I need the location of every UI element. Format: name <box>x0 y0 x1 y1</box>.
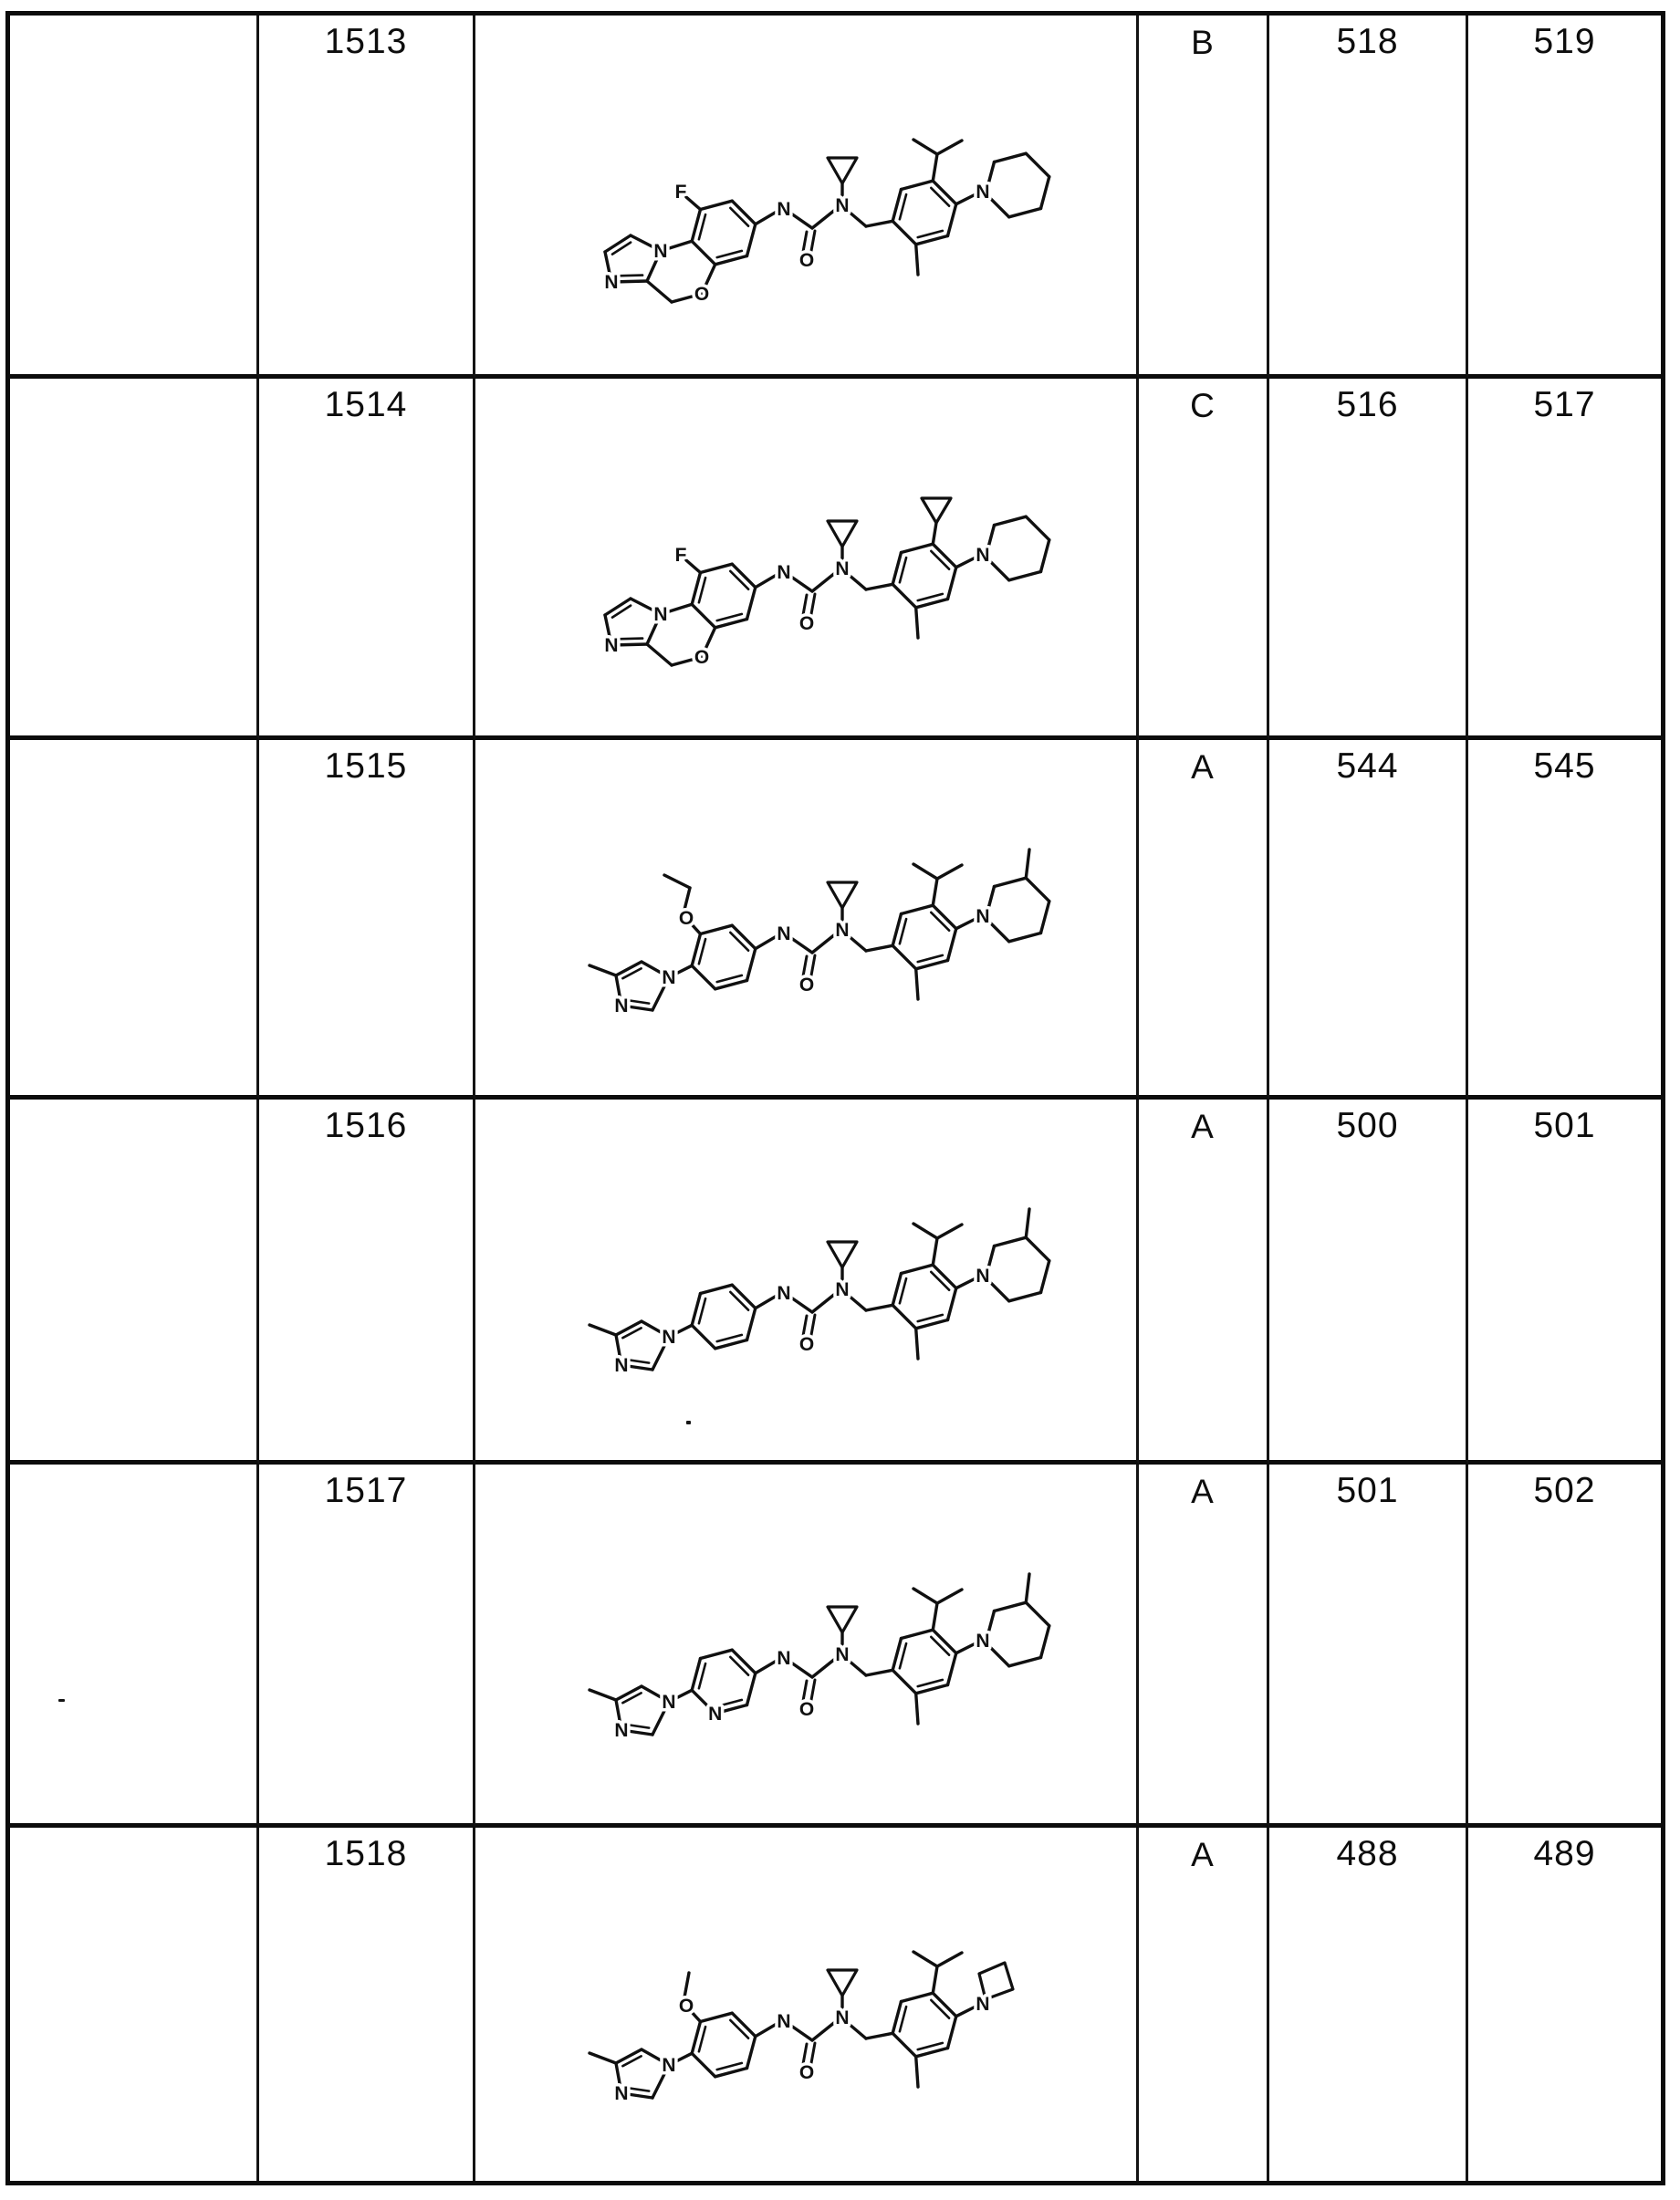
compound-number: 1518 <box>259 1828 475 2181</box>
svg-text:N: N <box>777 1648 790 1669</box>
compound-number: 1516 <box>259 1100 475 1465</box>
number-cell: 500 <box>1269 1100 1468 1465</box>
svg-text:N: N <box>976 906 989 927</box>
empty-cell <box>10 16 259 379</box>
number-cell: 502 <box>1468 1465 1661 1828</box>
empty-cell <box>10 1100 259 1465</box>
number-cell: 489 <box>1468 1828 1661 2181</box>
svg-text:N: N <box>653 604 667 625</box>
svg-text:O: O <box>679 908 694 929</box>
structure-cell: NONFNNON <box>475 16 1139 379</box>
letter-cell: A <box>1139 1465 1269 1828</box>
empty-cell <box>10 1828 259 2181</box>
svg-text:N: N <box>653 241 667 262</box>
svg-text:N: N <box>662 1692 675 1713</box>
number-cell: 488 <box>1269 1828 1468 2181</box>
letter-cell: A <box>1139 1100 1269 1465</box>
svg-text:N: N <box>662 967 675 988</box>
compound-number: 1517 <box>259 1465 475 1828</box>
svg-text:N: N <box>708 1704 722 1725</box>
compound-number: 1513 <box>259 16 475 379</box>
svg-text:N: N <box>976 1994 989 2015</box>
structure-cell: NNONNON <box>475 1828 1139 2181</box>
scanned-patent-page: { "table": { "rows": [ { "id": "1513", "… <box>0 0 1680 2200</box>
number-cell: 518 <box>1269 16 1468 379</box>
svg-text:N: N <box>614 2083 628 2104</box>
svg-text:N: N <box>604 635 618 656</box>
svg-text:N: N <box>777 2011 790 2032</box>
empty-cell <box>10 379 259 740</box>
number-cell: 519 <box>1468 16 1661 379</box>
svg-text:N: N <box>604 272 618 293</box>
svg-text:O: O <box>799 1334 814 1355</box>
chemical-structure: NNNNON <box>532 1189 1080 1399</box>
svg-text:O: O <box>799 613 814 634</box>
svg-text:N: N <box>976 182 989 203</box>
svg-text:N: N <box>976 1631 989 1652</box>
compound-table: 1513 NONFNNON B 518 519 1514 NONFNNON C … <box>5 11 1665 2185</box>
svg-text:N: N <box>976 1266 989 1287</box>
svg-text:O: O <box>799 250 814 271</box>
svg-text:N: N <box>835 1644 849 1665</box>
svg-text:O: O <box>679 1996 694 2017</box>
svg-text:F: F <box>675 545 687 566</box>
svg-text:N: N <box>835 2007 849 2028</box>
structure-cell: NNONNON <box>475 740 1139 1100</box>
scan-speck <box>686 1421 691 1424</box>
letter-cell: A <box>1139 1828 1269 2181</box>
structure-cell: NONFNNON <box>475 379 1139 740</box>
chemical-structure: NNNNNON <box>532 1554 1080 1764</box>
number-cell: 501 <box>1269 1465 1468 1828</box>
chemical-structure: NNONNON <box>532 1917 1080 2127</box>
empty-cell <box>10 1465 259 1828</box>
letter-cell: A <box>1139 740 1269 1100</box>
svg-text:N: N <box>835 195 849 216</box>
svg-text:N: N <box>976 545 989 566</box>
letter-cell: B <box>1139 16 1269 379</box>
svg-text:N: N <box>835 1279 849 1300</box>
svg-text:N: N <box>835 558 849 579</box>
structure-cell: NNNNNON <box>475 1465 1139 1828</box>
svg-text:O: O <box>799 2062 814 2083</box>
number-cell: 501 <box>1468 1100 1661 1465</box>
number-cell: 544 <box>1269 740 1468 1100</box>
empty-cell <box>10 740 259 1100</box>
svg-text:F: F <box>675 182 687 203</box>
compound-number: 1515 <box>259 740 475 1100</box>
svg-text:N: N <box>777 923 790 944</box>
svg-text:O: O <box>799 975 814 996</box>
svg-text:N: N <box>614 1720 628 1741</box>
letter-cell: C <box>1139 379 1269 740</box>
structure-cell: NNNNON <box>475 1100 1139 1465</box>
svg-text:N: N <box>777 199 790 220</box>
number-cell: 516 <box>1269 379 1468 740</box>
number-cell: 517 <box>1468 379 1661 740</box>
svg-text:N: N <box>835 920 849 941</box>
compound-number: 1514 <box>259 379 475 740</box>
svg-text:N: N <box>614 996 628 1017</box>
svg-text:N: N <box>777 1283 790 1304</box>
svg-text:O: O <box>799 1699 814 1720</box>
svg-text:N: N <box>777 562 790 583</box>
chemical-structure: NONFNNON <box>532 105 1080 315</box>
svg-text:O: O <box>694 284 709 305</box>
chemical-structure: NONFNNON <box>532 468 1080 678</box>
svg-text:N: N <box>614 1355 628 1376</box>
svg-text:N: N <box>662 1327 675 1348</box>
svg-text:O: O <box>694 647 709 668</box>
scan-speck <box>58 1699 65 1702</box>
number-cell: 545 <box>1468 740 1661 1100</box>
chemical-structure: NNONNON <box>532 829 1080 1039</box>
svg-text:N: N <box>662 2055 675 2076</box>
